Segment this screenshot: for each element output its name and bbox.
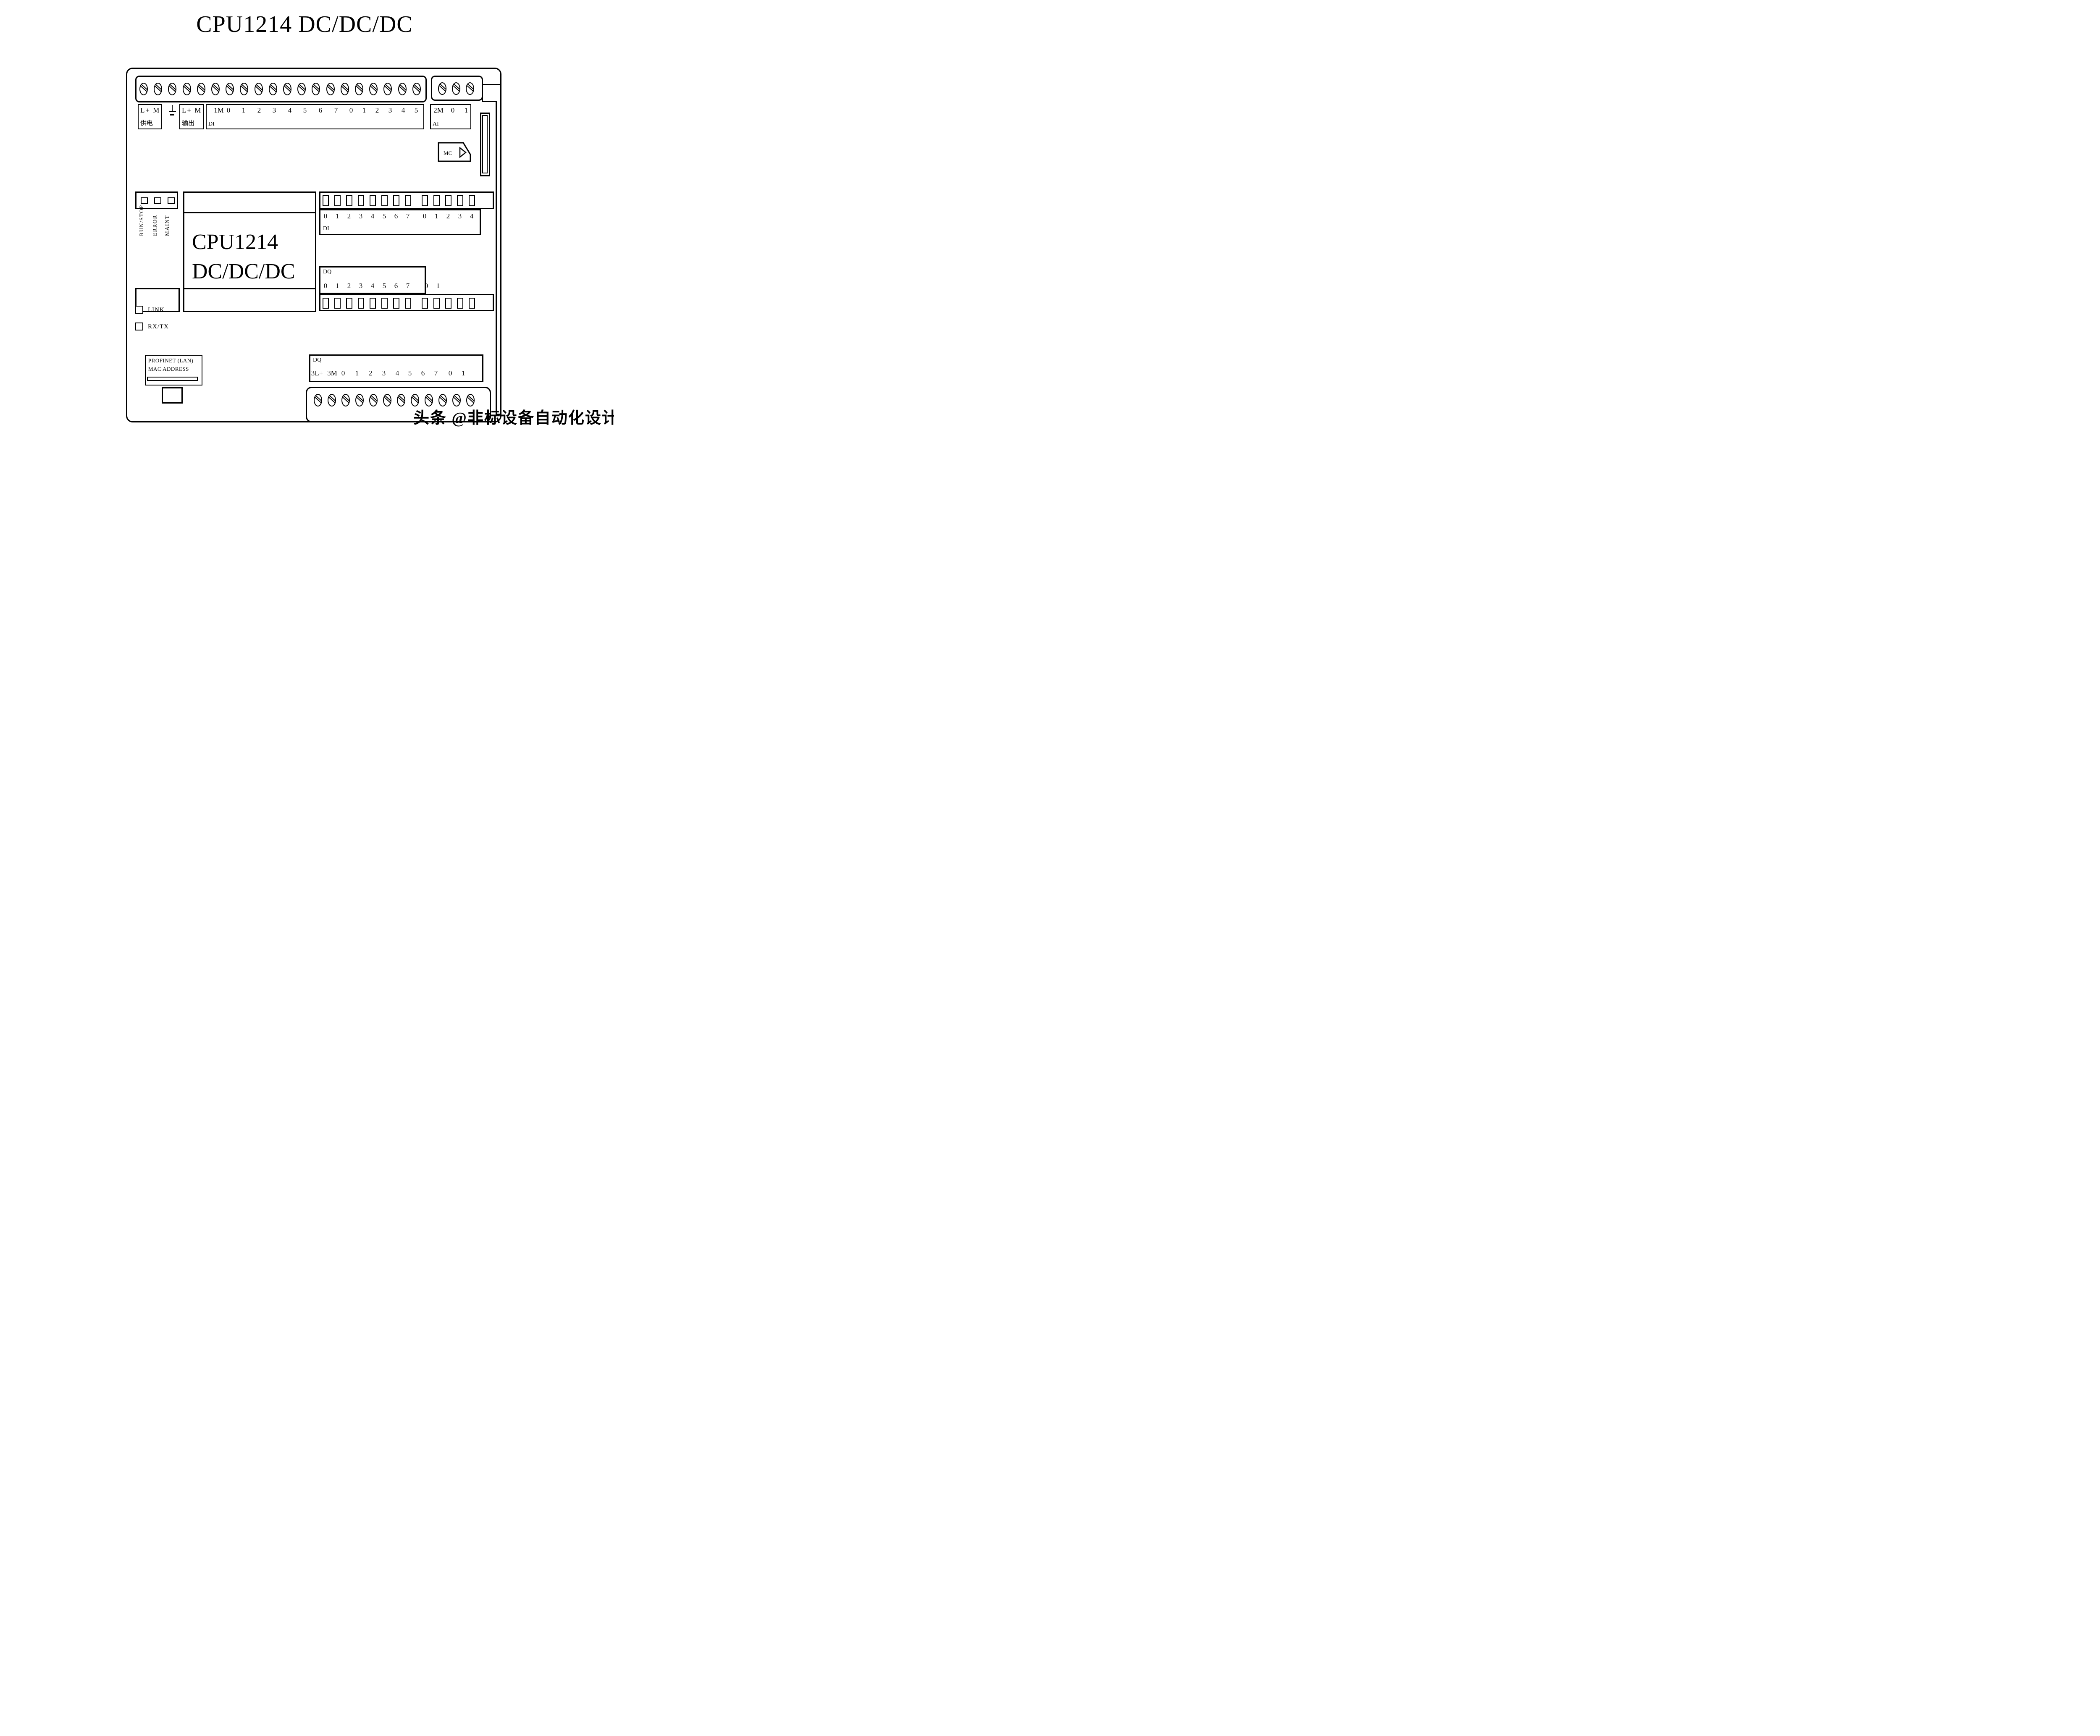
plc-wiring-diagram: CPU1214 DC/DC/DC L+ M 供电 L+ M 输出 DI 1M01… [0,0,614,434]
memory-card-label: MC [444,150,452,156]
di-channel-label: 3 [359,212,363,220]
cpu-face-divider [184,212,315,213]
dq-channel-label: 7 [406,282,410,290]
page-title: CPU1214 DC/DC/DC [185,11,424,38]
output-terminal-label: L+ M [182,106,202,115]
screw-slot [312,84,320,95]
io-led [422,195,428,206]
screw-slot [255,84,263,95]
screw-icon [197,83,205,95]
dq-terminal-box: DQ 3L+3M0123456701 [309,354,483,382]
terminal-label: 1 [462,369,465,378]
terminal-label: 0 [349,106,353,115]
terminal-label: 1 [465,106,468,115]
cpu-model-line1: CPU1214 [192,230,278,254]
terminal-label: 2M [433,106,444,115]
screw-slot [154,84,162,95]
dq-channel-label: 1 [436,282,440,290]
dq-channel-label: 2 [347,282,351,290]
screw-slot [452,84,460,94]
memory-card-icon: MC [438,142,471,162]
screw-slot [466,84,474,94]
screw-slot [452,395,461,406]
di-indicator-group-label: DI [323,226,329,232]
ai-terminal-screw-block[interactable] [431,76,483,101]
io-led [457,195,463,206]
screw-icon [398,83,407,95]
screw-icon [355,394,364,406]
screw-icon [269,83,277,95]
screw-slot [383,84,392,95]
di-channel-label: 4 [371,212,375,220]
screw-icon [341,83,349,95]
terminal-label: 3 [382,369,386,378]
screw-slot [355,395,364,406]
rxtx-led [135,323,143,330]
dq-channel-label: 3 [359,282,363,290]
screw-icon [283,83,291,95]
screw-slot [283,84,291,95]
power-cjk-label: 供电 [140,118,153,127]
di-channel-label: 4 [470,212,474,220]
di-channel-label: 2 [347,212,351,220]
io-led [346,298,352,309]
di-channel-label: 1 [435,212,438,220]
status-led-label-runstop: RUN/STOP [138,210,145,236]
io-led [334,195,341,206]
di-channel-label: 7 [406,212,410,220]
screw-icon [297,83,306,95]
screw-slot [168,84,176,95]
screw-slot [411,395,419,406]
io-led [433,195,440,206]
dq-indicator-group-label: DQ [323,269,331,275]
status-led [141,197,148,204]
io-led [405,195,411,206]
terminal-label: 3L+ [311,369,323,378]
screw-icon [452,82,460,95]
link-led-label: LINK [148,307,165,314]
screw-slot [341,395,350,406]
profinet-box: PROFINET (LAN) MAC ADDRESS [145,355,202,385]
screw-icon [397,394,405,406]
terminal-label: 4 [288,106,292,115]
dq-indicator-led-box [319,294,494,311]
ai-terminal-group-label: AI [433,121,439,128]
cpu-face-divider [184,288,315,289]
di-channel-label: 1 [336,212,339,220]
power-terminal-box: L+ M 供电 [138,104,162,129]
screw-icon [255,83,263,95]
screw-icon [383,83,392,95]
status-led-label-maint: MAINT [164,210,171,236]
terminal-label: 3 [388,106,392,115]
ethernet-port[interactable] [162,387,183,404]
di-channel-label: 2 [446,212,450,220]
screw-slot [314,395,322,406]
screw-slot [398,84,407,95]
screw-slot [139,84,148,95]
dq-indicator-label-box: DQ 0123456701 [319,266,426,294]
memory-card-slot-inner [482,115,488,173]
screw-icon [328,394,336,406]
di-terminal-box: DI 1M01234567012345 [206,104,424,129]
terminal-label: 4 [396,369,399,378]
screw-slot [211,84,220,95]
status-led [154,197,161,204]
power-terminal-label: L+ M [140,106,160,115]
screw-slot [341,84,349,95]
screw-slot [328,395,336,406]
terminal-label: 1 [362,106,366,115]
io-led [346,195,352,206]
io-led [323,195,329,206]
io-led [469,298,475,309]
io-led [370,298,376,309]
screw-icon [139,83,148,95]
di-channel-label: 5 [383,212,386,220]
screw-icon [326,83,335,95]
io-led [381,195,388,206]
screw-icon [314,394,322,406]
terminal-label: 1 [242,106,246,115]
di-indicator-led-box [319,191,494,209]
screw-slot [369,84,378,95]
terminal-label: 7 [434,369,438,378]
terminal-label: 2 [375,106,379,115]
screw-icon [183,83,191,95]
screw-slot [425,395,433,406]
dq-channel-label: 6 [394,282,398,290]
screw-slot [355,84,363,95]
screw-icon [226,83,234,95]
screw-slot [412,84,421,95]
io-led [358,298,364,309]
screw-slot [297,84,306,95]
screw-icon [466,82,474,95]
terminal-label: 5 [303,106,307,115]
top-terminal-screw-block[interactable] [135,76,427,102]
io-led [358,195,364,206]
di-channel-label: 6 [394,212,398,220]
screw-slot [369,395,378,406]
profinet-label: PROFINET (LAN) [148,357,194,364]
io-led [457,298,463,309]
io-led [445,195,451,206]
terminal-label: 6 [319,106,323,115]
io-led [445,298,451,309]
memory-card-slot[interactable] [480,113,490,176]
screw-icon [341,394,350,406]
io-led [433,298,440,309]
output-cjk-label: 输出 [182,118,194,127]
screw-slot [397,395,405,406]
screw-icon [438,82,446,95]
screw-slot [240,84,248,95]
di-terminal-group-label: DI [208,121,215,128]
di-channel-label: 0 [324,212,328,220]
terminal-label: 0 [227,106,231,115]
screw-slot [466,395,475,406]
io-led [323,298,329,309]
dq-channel-label: 0 [324,282,328,290]
io-led [469,195,475,206]
io-led [405,298,411,309]
io-led [393,195,399,206]
rxtx-led-label: RX/TX [148,323,169,330]
screw-icon [240,83,248,95]
screw-slot [438,395,447,406]
mac-address-label: MAC ADDRESS [148,366,189,372]
screw-icon [369,394,378,406]
screw-icon [355,83,363,95]
terminal-label: 5 [415,106,418,115]
dq-channel-label: 0 [425,282,428,290]
terminal-label: 6 [421,369,425,378]
watermark-text: 头条 @非标设备自动化设计 [413,405,614,428]
status-led [168,197,175,204]
screw-icon [369,83,378,95]
io-led [422,298,428,309]
cpu-model-line2: DC/DC/DC [192,259,295,284]
enclosure-step-line [482,101,497,102]
terminal-label: 5 [408,369,412,378]
enclosure-step-line [496,101,497,415]
terminal-label: 2 [369,369,373,378]
terminal-label: 2 [257,106,261,115]
cpu-face-box: CPU1214 DC/DC/DC [183,191,316,312]
terminal-label: 0 [341,369,345,378]
di-channel-label: 3 [458,212,462,220]
screw-slot [326,84,335,95]
screw-icon [412,83,421,95]
screw-icon [211,83,220,95]
io-led [334,298,341,309]
screw-slot [438,84,446,94]
dq-terminal-group-label: DQ [313,357,321,364]
screw-slot [183,84,191,95]
terminal-label: 4 [402,106,405,115]
terminal-label: 3 [273,106,276,115]
terminal-label: 0 [449,369,452,378]
screw-icon [168,83,176,95]
io-led [381,298,388,309]
ai-terminal-box: AI 2M01 [430,104,471,129]
output-terminal-box: L+ M 输出 [179,104,204,129]
di-indicator-label-box: DI 0123456701234 [319,209,481,235]
status-led-label-error: ERROR [152,210,158,236]
screw-slot [226,84,234,95]
screw-icon [383,394,391,406]
io-led [370,195,376,206]
io-led [393,298,399,309]
terminal-label: 1M [214,106,224,115]
screw-slot [269,84,277,95]
terminal-label: 1 [355,369,359,378]
link-led [135,306,143,314]
screw-icon [312,83,320,95]
terminal-label: 7 [334,106,338,115]
terminal-label: 3M [327,369,337,378]
screw-icon [154,83,162,95]
screw-slot [197,84,205,95]
dq-channel-label: 5 [383,282,386,290]
terminal-label: 0 [451,106,455,115]
dq-channel-label: 1 [336,282,339,290]
enclosure-step-line [482,84,501,85]
screw-slot [383,395,391,406]
di-channel-label: 0 [423,212,427,220]
dq-channel-label: 4 [371,282,375,290]
mac-address-strip [147,377,198,381]
